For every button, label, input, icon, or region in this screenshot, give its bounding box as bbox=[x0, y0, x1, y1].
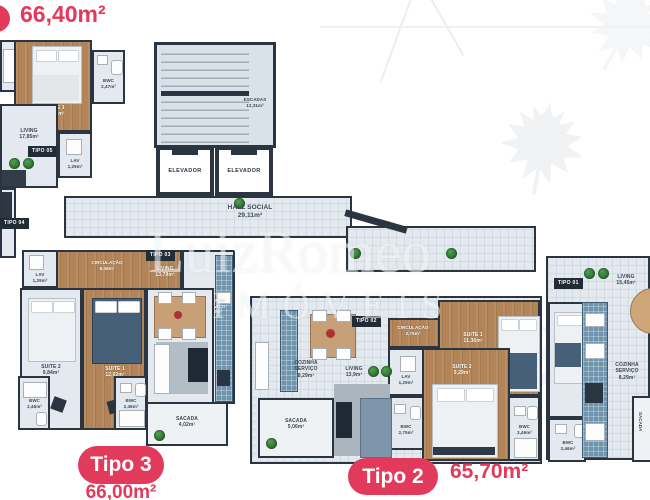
elevator-door bbox=[172, 150, 198, 155]
tipo02-lav: LAV 1,29m² bbox=[388, 348, 424, 396]
room-label-lav3: LAV 1,29m² bbox=[25, 272, 55, 283]
blanket bbox=[33, 75, 79, 101]
room-label-living: LIVING 17,85m² bbox=[4, 128, 54, 141]
pillow bbox=[36, 50, 57, 62]
toilet-fixture bbox=[135, 383, 146, 397]
kitchen-appliances bbox=[255, 342, 269, 390]
room-label-cozinha1: COZINHA SERVIÇO 8,29m² bbox=[606, 362, 648, 381]
fridge bbox=[585, 383, 603, 403]
plant bbox=[381, 366, 392, 377]
washer-fixture bbox=[585, 423, 605, 441]
tipo01-bwc: BWC 2,46m² bbox=[548, 418, 586, 462]
bed bbox=[32, 46, 82, 104]
shower-fixture bbox=[23, 382, 47, 398]
floorplan-canvas: 66,40m² SUITE 1 13,44m² BWC 2,47m² LIVIN… bbox=[0, 0, 650, 500]
sink-fixture bbox=[555, 424, 567, 434]
sink-fixture bbox=[120, 383, 132, 393]
tipo2-area: 65,70m² bbox=[450, 460, 528, 484]
room-label-escadas: ESCADAS 12,31m² bbox=[237, 97, 273, 108]
chair bbox=[158, 328, 172, 340]
tipo02-badge: TIPO 02 bbox=[352, 316, 381, 327]
tipo02-sacada: SACADA 5,06m² bbox=[258, 398, 334, 458]
toilet-fixture bbox=[111, 60, 123, 75]
tipo03-lav: LAV 1,29m² bbox=[22, 250, 58, 288]
chair bbox=[158, 292, 172, 304]
elevator-right: ELEVADOR bbox=[215, 146, 273, 196]
sofa bbox=[2, 170, 26, 186]
sink-fixture bbox=[514, 406, 526, 416]
room-label-suite2-t2: SUITE 2 9,29m² bbox=[434, 364, 490, 377]
pillow bbox=[53, 301, 75, 313]
plant bbox=[584, 268, 595, 279]
tipo01-sacada: SACADA bbox=[632, 396, 650, 462]
bed bbox=[554, 312, 584, 384]
chair bbox=[312, 310, 327, 322]
toilet-fixture bbox=[36, 412, 47, 426]
room-label-lav2: LAV 1,29m² bbox=[391, 374, 421, 385]
elevator-door bbox=[231, 150, 257, 155]
tipo05-badge: TIPO 05 bbox=[28, 146, 57, 157]
chair bbox=[50, 396, 67, 413]
tipo01-unit: TIPO 01 LIVING 15,45m² COZINHA SERVIÇO 8… bbox=[546, 256, 650, 460]
stair-landing-wall bbox=[161, 91, 249, 96]
blanket bbox=[555, 343, 581, 367]
chair bbox=[312, 348, 327, 360]
tipo03-badge: TIPO 03 bbox=[146, 250, 175, 261]
divider-line bbox=[320, 26, 650, 28]
tipo04-badge: TIPO 04 bbox=[0, 218, 29, 229]
bed bbox=[432, 384, 498, 458]
round-table bbox=[630, 288, 650, 334]
footboard bbox=[433, 447, 495, 455]
elevator-label: ELEVADOR bbox=[227, 168, 260, 174]
sofa bbox=[360, 398, 392, 458]
plant bbox=[266, 438, 277, 449]
shower-fixture bbox=[514, 438, 537, 458]
room-label-bwc2-t2: BWC 2,46m² bbox=[511, 424, 538, 435]
plant bbox=[446, 248, 457, 259]
plant bbox=[9, 158, 20, 169]
maple-leaf-watermark bbox=[561, 0, 650, 94]
stairs-block: ESCADAS 12,31m² bbox=[154, 42, 276, 148]
sink-fixture bbox=[394, 404, 406, 414]
room-label-hall: HALL SOCIAL 29,11m² bbox=[202, 204, 298, 220]
cabinet bbox=[2, 192, 12, 218]
room-label-living1: LIVING 15,45m² bbox=[604, 274, 648, 287]
room-label-suite2: SUITE 2 9,84m² bbox=[24, 364, 78, 377]
plant bbox=[350, 248, 361, 259]
chair bbox=[182, 292, 196, 304]
tipo03-sacada: SACADA 4,02m² bbox=[146, 402, 228, 446]
tv-panel bbox=[336, 402, 352, 438]
washer-fixture bbox=[66, 139, 82, 155]
tipo02-bwc2: BWC 2,46m² bbox=[508, 396, 540, 461]
room-label-sacada2: SACADA 5,06m² bbox=[272, 418, 320, 431]
plant bbox=[154, 430, 165, 441]
stove bbox=[585, 343, 605, 359]
pillow bbox=[58, 50, 79, 62]
hall-social-right bbox=[346, 226, 536, 272]
pillow bbox=[95, 301, 117, 313]
tipo03-bwc1: BWC 2,46m² bbox=[18, 376, 50, 430]
kitchen-counter bbox=[280, 310, 298, 392]
pillow bbox=[501, 319, 519, 331]
tipo2-pill: Tipo 2 bbox=[348, 458, 438, 495]
chair bbox=[336, 348, 351, 360]
room-label-living2: LIVING 13,9m² bbox=[336, 366, 372, 379]
tipo05-bwc: BWC 2,47m² bbox=[92, 50, 125, 104]
tipo01-badge: TIPO 01 bbox=[554, 278, 583, 289]
chair bbox=[182, 328, 196, 340]
tipo02-bwc1: BWC 2,75m² bbox=[388, 396, 424, 450]
area-label-top: 66,40m² bbox=[20, 1, 106, 28]
pillow bbox=[519, 319, 537, 331]
stair-treads bbox=[161, 49, 249, 143]
sofa bbox=[154, 344, 170, 394]
sink-fixture bbox=[97, 55, 108, 65]
elevator-label: ELEVADOR bbox=[168, 168, 201, 174]
tipo01-bedroom bbox=[548, 302, 586, 418]
centerpiece bbox=[174, 311, 182, 319]
room-label-living3: LIVING 13,79m² bbox=[144, 266, 186, 279]
pillow bbox=[437, 388, 465, 402]
cut-off-type-pill bbox=[0, 5, 10, 32]
room-label-sacada3: SACADA 4,02m² bbox=[162, 416, 212, 429]
room-label-circulacao2: CIRCULAÇÃO 2,75m² bbox=[391, 325, 435, 336]
tipo02-unit: COZINHA SERVIÇO 8,29m² TIPO 02 LIVING 13… bbox=[250, 296, 542, 464]
centerpiece bbox=[326, 329, 335, 338]
pillow bbox=[557, 315, 583, 326]
plant bbox=[23, 158, 34, 169]
kitchen-sink bbox=[585, 313, 605, 327]
tipo05-lav: LAV 1,29m² bbox=[58, 132, 92, 178]
tipo03-living bbox=[146, 288, 214, 404]
bed bbox=[28, 298, 76, 362]
room-label-circulacao: CIRCULAÇÃO 8,08m² bbox=[76, 260, 138, 271]
room-label-cozinha2: COZINHA SERVIÇO 8,29m² bbox=[286, 360, 326, 379]
fridge bbox=[217, 370, 230, 386]
room-label-bwc1-t2: BWC 2,75m² bbox=[392, 424, 420, 435]
pillow bbox=[466, 388, 494, 402]
bed bbox=[92, 298, 142, 364]
room-label-lav: LAV 1,29m² bbox=[60, 158, 90, 169]
elevator-left: ELEVADOR bbox=[156, 146, 214, 196]
room-label-suite1-t2: SUITE 1 11,36m² bbox=[446, 332, 500, 345]
shower-fixture bbox=[119, 410, 145, 427]
tipo02-circulacao: CIRCULAÇÃO 2,75m² bbox=[388, 318, 440, 348]
room-label-bwc1: BWC 2,46m² bbox=[21, 398, 48, 409]
room-label-bwc-t1: BWC 2,46m² bbox=[552, 440, 584, 451]
washer-fixture bbox=[400, 356, 416, 372]
maple-leaf-watermark bbox=[484, 90, 600, 206]
washer-fixture bbox=[29, 255, 44, 270]
room-label-sacada1: SACADA bbox=[638, 412, 643, 431]
toilet-fixture bbox=[410, 406, 421, 420]
tipo02-suite2: SUITE 2 9,29m² bbox=[422, 348, 510, 461]
room-label-bwc: BWC 2,47m² bbox=[94, 78, 123, 89]
chair bbox=[336, 310, 351, 322]
tv-panel bbox=[188, 348, 208, 382]
pillow bbox=[31, 301, 53, 313]
tipo03-bwc2: BWC 2,46m² bbox=[114, 376, 147, 430]
leaf-stem-line bbox=[380, 0, 413, 83]
room-label-bwc2: BWC 2,46m² bbox=[117, 398, 145, 409]
toilet-fixture bbox=[527, 406, 538, 420]
kitchen-counter bbox=[582, 302, 608, 458]
tipo3-area: 66,00m² bbox=[76, 482, 166, 500]
pillow bbox=[118, 301, 140, 313]
tipo3-pill: Tipo 3 bbox=[78, 446, 164, 484]
